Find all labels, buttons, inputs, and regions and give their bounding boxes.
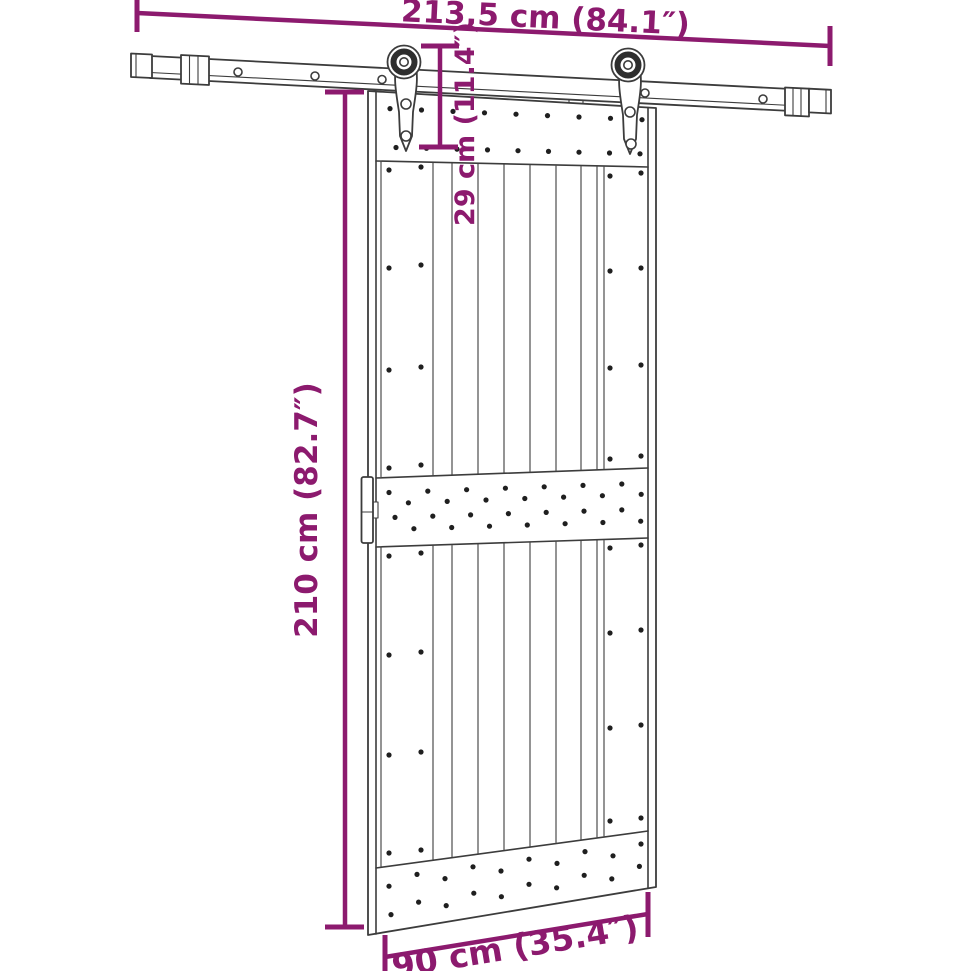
strap-bolt [401, 99, 411, 109]
strap-bolt [625, 107, 635, 117]
dimension-rail-length: 213,5 cm (84.1″) [137, 0, 830, 66]
rail-end-cap-left [131, 54, 152, 79]
rail-stopper-left [181, 55, 209, 85]
drop-height-label: 29 cm (11.4″) [450, 22, 481, 226]
diagram-canvas: 213,5 cm (84.1″) 29 cm (11.4″) 210 cm (8… [0, 0, 970, 971]
barn-door-dimension-diagram: 213,5 cm (84.1″) 29 cm (11.4″) 210 cm (8… [0, 0, 970, 971]
door-height-label: 210 cm (82.7″) [289, 382, 325, 638]
door-handle-bar [362, 477, 374, 543]
strap-bolt [626, 139, 636, 149]
strap-bolt [401, 131, 411, 141]
rail-length-label: 213,5 cm (84.1″) [400, 0, 690, 43]
roller-axle [400, 58, 408, 66]
door-outline [368, 91, 656, 935]
rail-stopper-right [785, 88, 809, 117]
roller-axle [624, 61, 632, 69]
barn-door [368, 91, 656, 935]
dimension-door-height: 210 cm (82.7″) [289, 92, 364, 927]
rail-end-cap-right [809, 89, 831, 114]
